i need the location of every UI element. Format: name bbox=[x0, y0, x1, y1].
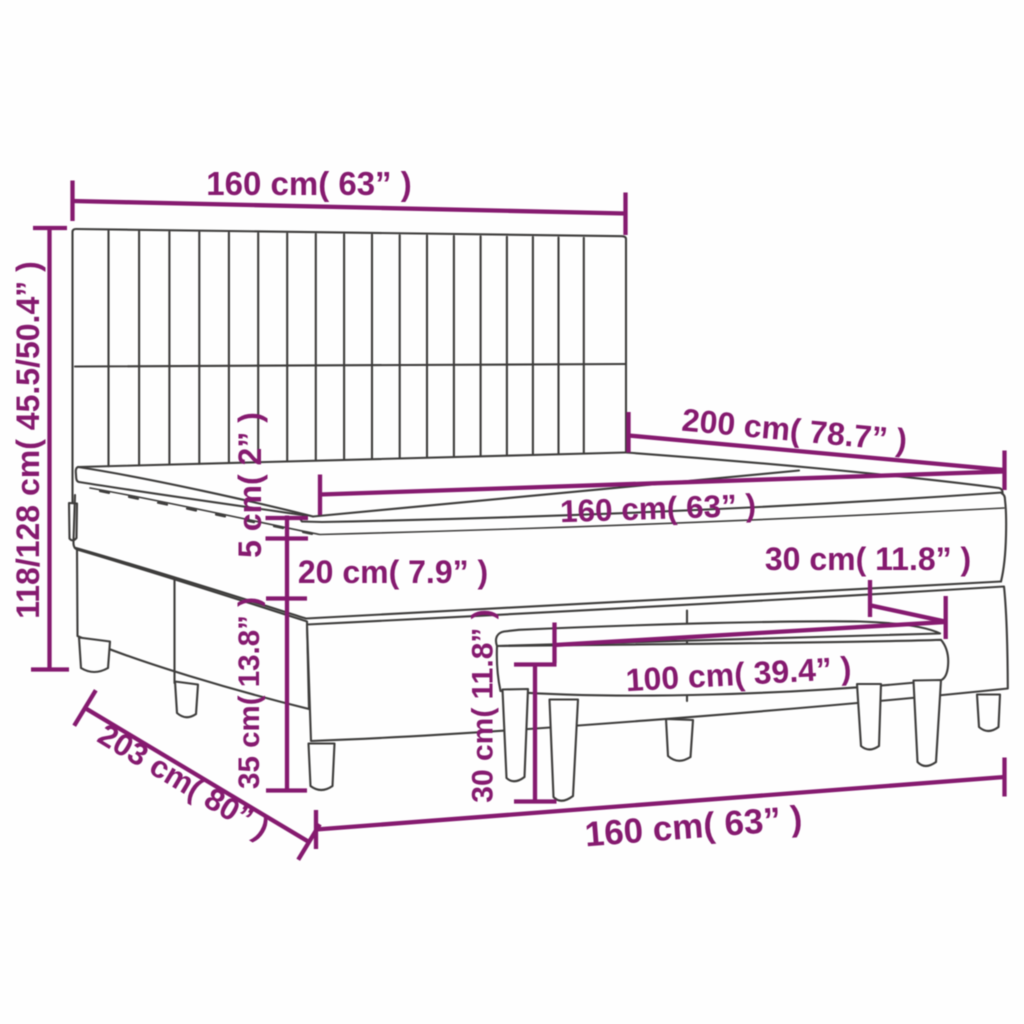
svg-text:30 cm( 11.8” ): 30 cm( 11.8” ) bbox=[467, 609, 500, 802]
svg-text:35 cm( 13.8” ): 35 cm( 13.8” ) bbox=[233, 597, 266, 789]
svg-text:20 cm( 7.9” ): 20 cm( 7.9” ) bbox=[298, 554, 488, 590]
svg-text:160 cm( 63” ): 160 cm( 63” ) bbox=[559, 487, 756, 529]
svg-text:30 cm( 11.8” ): 30 cm( 11.8” ) bbox=[765, 541, 971, 577]
svg-text:118/128 cm( 45.5/50.4” ): 118/128 cm( 45.5/50.4” ) bbox=[10, 261, 46, 619]
svg-text:5 cm( 2” ): 5 cm( 2” ) bbox=[232, 412, 268, 558]
svg-text:160 cm( 63” ): 160 cm( 63” ) bbox=[206, 165, 411, 202]
